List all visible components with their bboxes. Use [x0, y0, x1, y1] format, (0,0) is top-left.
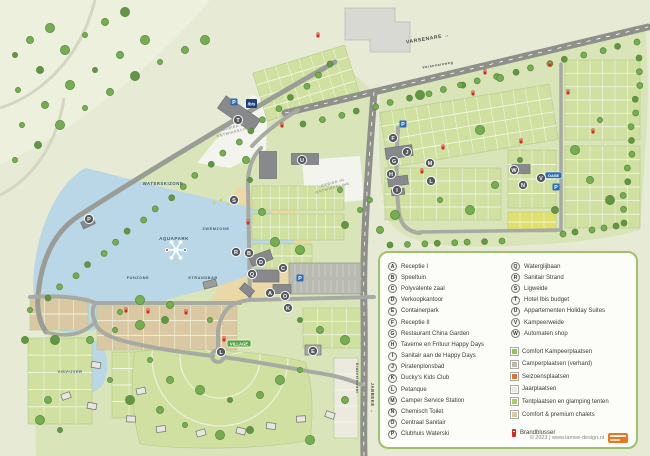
- fire-extinguisher-icon: [512, 429, 516, 437]
- facility-marker-i: I: [392, 185, 401, 194]
- oase-sign: OASE: [545, 172, 562, 179]
- plot-grid: [28, 338, 92, 424]
- svg-text:OASE: OASE: [548, 173, 560, 178]
- map-label: WATERSKIZONE: [143, 181, 184, 186]
- tree: [560, 231, 566, 237]
- pitch-color-swatch: [511, 373, 518, 380]
- svg-text:Q: Q: [250, 272, 255, 278]
- building: [260, 152, 277, 179]
- fire-extinguisher-icon: [592, 129, 595, 134]
- facility-marker-l: L: [426, 176, 435, 185]
- tree: [65, 80, 74, 89]
- legend-item-label: Comfort Kampeerplaatsen: [522, 349, 592, 355]
- facility-marker-n: N: [518, 180, 527, 189]
- tree: [620, 193, 626, 199]
- tree: [341, 221, 348, 228]
- legend-item-label: Clubhuis Waterski: [401, 431, 449, 437]
- legend-item-label: Camperplaatsen (verhard): [522, 361, 592, 367]
- legend-item-label: Taverne en Frituur Happy Days: [401, 342, 484, 348]
- facility-marker-w: W: [509, 165, 518, 174]
- tree: [21, 336, 28, 343]
- parking-icon: P: [400, 121, 407, 129]
- facility-marker-g: G: [389, 156, 398, 165]
- tree: [319, 117, 325, 123]
- tree: [634, 39, 640, 45]
- tree: [236, 139, 242, 145]
- facility-marker-s: S: [229, 195, 238, 204]
- legend-item-label: Receptie I: [401, 264, 428, 270]
- tree: [140, 35, 149, 44]
- fire-extinguisher-icon: [247, 220, 250, 225]
- tree: [207, 317, 212, 322]
- tree: [60, 45, 69, 54]
- facility-marker-b: B: [244, 248, 253, 257]
- svg-text:U: U: [300, 158, 304, 164]
- tree: [258, 208, 265, 215]
- tree: [434, 240, 440, 246]
- map-label: ZWEMZONE: [203, 227, 230, 231]
- tree: [156, 406, 163, 413]
- legend-item-label: Speeltuin: [401, 275, 426, 281]
- svg-text:O: O: [283, 294, 288, 300]
- legend-letter-badge: R: [511, 273, 520, 282]
- tree: [586, 176, 593, 183]
- tree: [157, 59, 162, 64]
- facility-marker-o: O: [280, 291, 289, 300]
- tree: [341, 396, 348, 403]
- legend-item-c: CPolyvalente zaal: [388, 283, 507, 294]
- facility-marker-d: D: [256, 257, 265, 266]
- tree: [73, 273, 79, 279]
- tree: [615, 43, 621, 49]
- legend-letter-badge: C: [388, 284, 397, 293]
- legend-item-label: Sanitair Strand: [524, 275, 564, 281]
- tree: [57, 427, 62, 432]
- tree: [624, 165, 630, 171]
- tree: [27, 307, 32, 312]
- tree: [246, 426, 253, 433]
- tree: [637, 83, 643, 89]
- tree: [124, 228, 130, 234]
- legend-item-n: NChemisch Toilet: [388, 406, 507, 417]
- facility-marker-j: J: [402, 147, 411, 156]
- tree: [357, 207, 362, 212]
- tree: [589, 227, 595, 233]
- legend-letter-badge: A: [388, 262, 397, 271]
- legend-item-k: KDucky's Kids Club: [388, 373, 507, 384]
- svg-text:W: W: [511, 168, 517, 174]
- tree: [376, 226, 383, 233]
- legend-item-p: PClubhuis Waterski: [388, 429, 507, 440]
- legend-item-label: Kampeerweide: [524, 320, 564, 326]
- legend-letter-badge: O: [388, 419, 397, 428]
- legend-item-label: Verkoopkantoor: [401, 297, 443, 303]
- map-label: FUNZONE: [127, 276, 150, 280]
- legend-pitch-type-4: Tentplaatsen en glamping tenten: [511, 396, 630, 409]
- tree: [220, 150, 226, 156]
- tree: [276, 106, 282, 112]
- svg-text:J: J: [405, 150, 408, 156]
- legend-item-label: Receptie II: [401, 320, 430, 326]
- legend-letter-badge: Q: [511, 262, 520, 271]
- legend-item-f: FReceptie II: [388, 317, 507, 328]
- tree: [452, 240, 458, 246]
- svg-text:P: P: [232, 100, 236, 106]
- tree: [113, 239, 119, 245]
- legend-letter-badge: N: [388, 408, 397, 417]
- building: [253, 270, 279, 282]
- svg-text:G: G: [392, 159, 396, 165]
- parking-icon: P: [553, 184, 560, 192]
- tree: [182, 422, 187, 427]
- tree: [629, 138, 635, 144]
- tree: [242, 156, 249, 163]
- parking-icon: P: [231, 99, 238, 107]
- tree: [636, 69, 642, 75]
- tree: [551, 206, 558, 213]
- legend-letter-badge: T: [511, 296, 520, 305]
- tree: [275, 375, 284, 384]
- fire-extinguisher-icon: [185, 310, 188, 315]
- tree: [475, 125, 484, 134]
- tree: [195, 385, 204, 394]
- svg-text:M: M: [428, 161, 433, 167]
- legend-item-label: Comfort & premium chalets: [522, 412, 595, 418]
- tree: [404, 241, 410, 247]
- tree: [426, 91, 432, 97]
- legend-item-r: RSanitair Strand: [511, 272, 630, 283]
- legend-letter-badge: M: [388, 396, 397, 405]
- tree: [581, 52, 587, 58]
- plot-grid: [252, 214, 344, 240]
- legend-facilities-col1: AReceptie IBSpeeltuinCPolyvalente zaalDV…: [388, 261, 507, 440]
- plot-grid: [565, 146, 640, 228]
- tree: [55, 120, 64, 129]
- svg-text:A: A: [268, 291, 272, 297]
- svg-text:S: S: [232, 198, 236, 204]
- building: [87, 402, 97, 410]
- legend-footer: © 2023 | www.lamee-design.nl: [530, 433, 628, 443]
- map-label: VISVIJVER: [57, 370, 82, 374]
- legend-pitch-type-5: Comfort & premium chalets: [511, 408, 630, 421]
- tree: [295, 245, 304, 254]
- tree: [36, 66, 43, 73]
- legend-letter-badge: W: [511, 329, 520, 338]
- pitch-color-swatch: [511, 386, 518, 393]
- svg-text:P: P: [554, 185, 558, 191]
- tree: [135, 295, 144, 304]
- tree: [82, 32, 87, 37]
- fire-extinguisher-icon: [125, 308, 128, 313]
- legend-item-label: Appartementen Holiday Suites: [524, 308, 605, 314]
- legend-item-label: Petanque: [401, 387, 427, 393]
- legend-item-label: Containerpark: [401, 308, 439, 314]
- legend-letter-badge: E: [388, 307, 397, 316]
- facility-marker-k: K: [283, 303, 292, 312]
- pitch-color-swatch: [511, 411, 518, 418]
- tree: [613, 223, 619, 229]
- facility-marker-l: L: [216, 347, 225, 356]
- svg-text:N: N: [521, 183, 525, 189]
- tree: [339, 112, 345, 118]
- swim-float: [213, 202, 215, 204]
- legend-item-v: VKampeerweide: [511, 317, 630, 328]
- legend-letter-badge: F: [388, 318, 397, 327]
- tree: [82, 105, 87, 110]
- legend-item-s: SLigweide: [511, 283, 630, 294]
- map-label: JABBEKE →: [370, 383, 375, 414]
- tree: [315, 72, 321, 78]
- tree: [200, 35, 209, 44]
- road: [420, 230, 561, 232]
- svg-text:E: E: [311, 349, 315, 355]
- fire-extinguisher-icon: [549, 62, 552, 67]
- tree: [457, 82, 462, 87]
- svg-text:P: P: [401, 122, 405, 128]
- tree: [208, 161, 214, 167]
- tree: [496, 74, 503, 81]
- svg-text:H: H: [389, 172, 393, 178]
- legend-letter-badge: S: [511, 284, 520, 293]
- tree: [181, 46, 188, 53]
- fire-extinguisher-icon: [223, 337, 226, 342]
- tree: [305, 435, 314, 444]
- legend-item-q: QWaterglijbaan: [511, 261, 630, 272]
- legend-item-i: ISanitair aan de Happy Days: [388, 351, 507, 362]
- tree: [34, 141, 41, 148]
- map-label: STRANDBAR: [188, 276, 217, 280]
- fire-extinguisher-icon: [281, 123, 284, 128]
- legend-item-b: BSpeeltuin: [388, 272, 507, 283]
- tree: [117, 309, 122, 314]
- fire-extinguisher-icon: [472, 91, 475, 96]
- tree: [116, 51, 123, 58]
- tree: [304, 83, 310, 89]
- legend-item-label: Jaarplaatsen: [522, 386, 556, 392]
- tree: [605, 195, 614, 204]
- tree: [86, 336, 93, 343]
- fire-extinguisher-icon: [421, 169, 424, 174]
- tree: [141, 217, 147, 223]
- building: [156, 425, 166, 432]
- tree: [44, 396, 51, 403]
- tree: [482, 239, 488, 245]
- tree: [215, 430, 224, 439]
- tree: [15, 87, 20, 92]
- svg-text:P: P: [87, 217, 91, 223]
- swim-float: [227, 203, 229, 205]
- fire-extinguisher-icon: [147, 309, 150, 314]
- tree: [625, 179, 631, 185]
- tree: [166, 376, 173, 383]
- tree: [513, 69, 519, 75]
- tree: [390, 210, 399, 219]
- tree: [465, 205, 474, 214]
- tree: [297, 367, 302, 372]
- facility-marker-a: A: [265, 288, 274, 297]
- tree: [41, 101, 48, 108]
- tree: [300, 121, 306, 127]
- legend-item-label: Ducky's Kids Club: [401, 375, 449, 381]
- tree: [633, 110, 639, 116]
- copyright-text: © 2023 | www.lamee-design.nl: [530, 435, 604, 441]
- tree: [125, 395, 134, 404]
- tree: [135, 320, 144, 329]
- tree: [130, 71, 139, 80]
- legend-columns: AReceptie IBSpeeltuinCPolyvalente zaalDV…: [388, 261, 630, 440]
- tree: [147, 357, 152, 362]
- legend-pitch-type-1: Camperplaatsen (verhard): [511, 358, 630, 371]
- tree: [621, 206, 627, 212]
- svg-text:V: V: [539, 176, 543, 182]
- tree: [628, 124, 634, 130]
- tree: [112, 327, 117, 332]
- tree: [169, 195, 175, 201]
- tree: [597, 117, 602, 122]
- tree: [45, 295, 51, 301]
- legend-item-label: Seizoensplaatsen: [522, 374, 569, 380]
- tree: [407, 95, 413, 101]
- tree: [45, 23, 54, 32]
- building: [91, 361, 101, 368]
- svg-text:B: B: [247, 251, 251, 257]
- pitch-color-swatch: [511, 348, 518, 355]
- ibis-sign: ibis: [246, 99, 257, 108]
- legend-pitch-type-2: Seizoensplaatsen: [511, 371, 630, 384]
- fire-extinguisher-icon: [317, 33, 320, 38]
- tree: [632, 96, 638, 102]
- facility-marker-t: T: [233, 115, 242, 124]
- legend-item-g: GRestaurant China Garden: [388, 328, 507, 339]
- facility-marker-c: C: [278, 263, 287, 272]
- building: [126, 416, 135, 422]
- plot-grid: [303, 308, 361, 348]
- tree: [327, 61, 333, 67]
- legend-item-label: Piratenplonsbad: [401, 364, 444, 370]
- tree: [340, 335, 349, 344]
- legend-item-label: Chemisch Toilet: [401, 409, 443, 415]
- legend-item-label: Camper Service Station: [401, 398, 464, 404]
- tree: [601, 225, 607, 231]
- facility-marker-u: U: [297, 155, 306, 164]
- legend-pitch-type-0: Comfort Kampeerplaatsen: [511, 345, 630, 358]
- legend-letter-badge: K: [388, 374, 397, 383]
- building: [266, 423, 276, 430]
- tree: [437, 197, 442, 202]
- legend-letter-badge: G: [388, 329, 397, 338]
- tree: [92, 67, 97, 72]
- legend-item-u: UAppartementen Holiday Suites: [511, 306, 630, 317]
- tree: [270, 237, 279, 246]
- tree: [297, 317, 302, 322]
- tree: [152, 206, 158, 212]
- fire-extinguisher-icon: [567, 90, 570, 95]
- parking-icon: P: [297, 275, 304, 283]
- tree: [491, 181, 498, 188]
- tree: [50, 335, 59, 344]
- legend-item-label: Ligweide: [524, 286, 548, 292]
- tree: [527, 65, 533, 71]
- tree: [19, 122, 24, 127]
- facility-marker-h: H: [386, 169, 395, 178]
- legend-item-label: Polyvalente zaal: [401, 286, 445, 292]
- tree: [440, 86, 446, 92]
- tree: [572, 229, 578, 235]
- legend-facilities-col2: QWaterglijbaanRSanitair StrandSLigweideT…: [511, 261, 630, 440]
- tree: [192, 172, 198, 178]
- svg-text:P: P: [298, 276, 302, 282]
- tree: [161, 316, 168, 323]
- facility-marker-v: V: [536, 173, 545, 182]
- tree: [287, 94, 293, 100]
- tree: [101, 250, 107, 256]
- tree: [464, 239, 470, 245]
- building: [296, 416, 305, 422]
- tree: [247, 177, 252, 182]
- legend-letter-badge: P: [388, 430, 397, 439]
- tree: [387, 242, 393, 248]
- tree: [35, 415, 44, 424]
- tree: [259, 117, 265, 123]
- map-label: AQUAPARK: [159, 236, 189, 241]
- tree: [367, 197, 372, 202]
- svg-text:K: K: [286, 306, 290, 312]
- pitch-color-swatch: [511, 361, 518, 368]
- tree: [57, 284, 63, 290]
- tree: [120, 7, 129, 16]
- tree: [570, 145, 579, 154]
- tree: [621, 220, 627, 226]
- facility-marker-p: P: [84, 214, 93, 223]
- legend-item-w: WAutomaten shop: [511, 328, 630, 339]
- tree: [353, 108, 359, 114]
- map-label: Krakeelstraat: [355, 363, 359, 394]
- tree: [629, 151, 635, 157]
- legend-letter-badge: B: [388, 273, 397, 282]
- tree: [12, 52, 17, 57]
- legend-pitch-type-3: Jaarplaatsen: [511, 383, 630, 396]
- legend-item-a: AReceptie I: [388, 261, 507, 272]
- svg-text:VILLAGE: VILLAGE: [230, 341, 248, 346]
- fire-extinguisher-icon: [520, 139, 523, 144]
- tree: [166, 301, 173, 308]
- tree: [422, 241, 428, 247]
- legend-item-label: Centraal Sanitair: [401, 420, 446, 426]
- swim-float: [220, 199, 222, 201]
- tree: [600, 48, 606, 54]
- map-legend: AReceptie IBSpeeltuinCPolyvalente zaalDV…: [378, 251, 638, 449]
- svg-text:D: D: [259, 260, 263, 266]
- tree: [499, 238, 505, 244]
- legend-letter-badge: L: [388, 385, 397, 394]
- legend-item-label: Waterglijbaan: [524, 264, 560, 270]
- legend-letter-badge: V: [511, 318, 520, 327]
- legend-item-label: Restaurant China Garden: [401, 331, 469, 337]
- svg-text:ibis: ibis: [248, 102, 256, 107]
- legend-letter-badge: H: [388, 340, 397, 349]
- tree: [107, 377, 112, 382]
- tree: [636, 55, 642, 61]
- pitch-color-swatch: [511, 398, 518, 405]
- legend-item-l: LPetanque: [388, 384, 507, 395]
- svg-text:R: R: [234, 250, 238, 256]
- tree: [517, 157, 522, 162]
- fire-extinguisher-icon: [484, 70, 487, 75]
- tree: [85, 262, 91, 268]
- legend-item-label: Sanitair aan de Happy Days: [401, 353, 476, 359]
- tree: [415, 90, 424, 99]
- tree: [474, 78, 480, 84]
